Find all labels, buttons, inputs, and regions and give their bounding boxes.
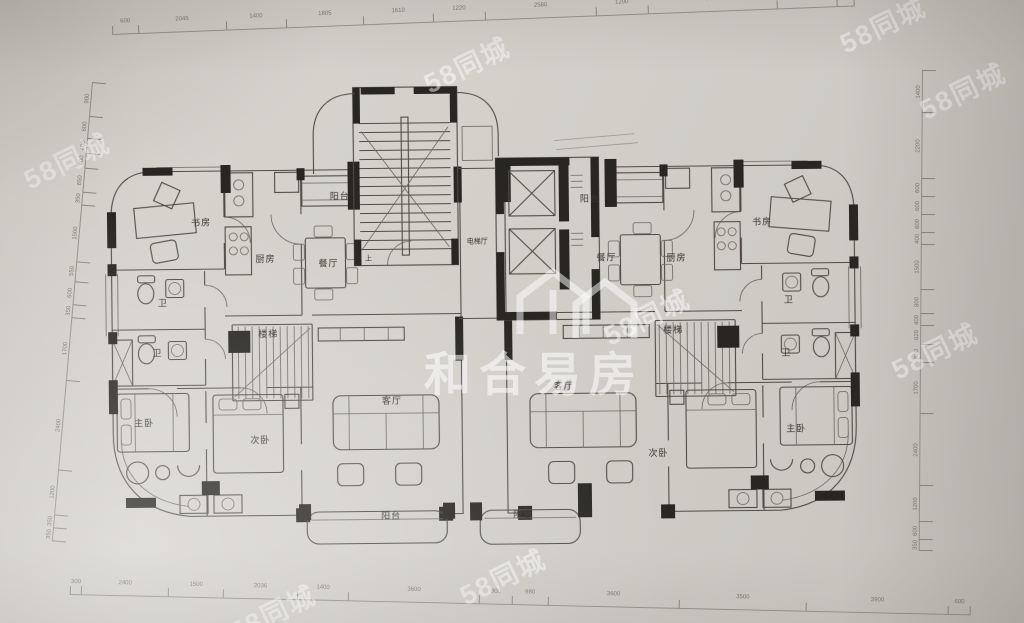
room-label-elevator-hall: 电梯厅 bbox=[467, 236, 488, 246]
room-label-balcony-top-left: 阳台 bbox=[330, 189, 350, 202]
room-label-study-right: 书房 bbox=[752, 215, 772, 228]
room-label-study-left: 书房 bbox=[191, 216, 211, 229]
room-label-bath-right-1: 卫 bbox=[784, 293, 794, 306]
floor-plan: 书房 厨房 餐厅 卫 卫 楼梯 客厅 主卧 次卧 阳台 阳台 电梯厅 上 书房 … bbox=[0, 0, 1024, 623]
room-label-second-left: 次卧 bbox=[250, 433, 270, 446]
room-label-master-left: 主卧 bbox=[134, 416, 154, 429]
room-label-stairs-right: 楼梯 bbox=[663, 323, 683, 336]
room-label-dining-right: 餐厅 bbox=[596, 250, 616, 263]
room-label-balcony-top-right: 阳台 bbox=[580, 192, 600, 205]
room-label-bath-left-1: 卫 bbox=[158, 296, 168, 309]
room-label-kitchen-left: 厨房 bbox=[255, 252, 275, 265]
floor-plan-drawing bbox=[0, 0, 1024, 623]
stairs-up-label: 上 bbox=[365, 253, 372, 263]
room-label-kitchen-right: 厨房 bbox=[666, 251, 686, 264]
room-label-bath-right-2: 卫 bbox=[781, 346, 791, 359]
room-label-dining-left: 餐厅 bbox=[318, 256, 338, 269]
floor-plan-photo: 书房 厨房 餐厅 卫 卫 楼梯 客厅 主卧 次卧 阳台 阳台 电梯厅 上 书房 … bbox=[0, 0, 1024, 623]
room-label-balcony-bottom-right: 阳台 bbox=[513, 507, 533, 520]
room-label-balcony-bottom-left: 阳台 bbox=[381, 509, 401, 522]
room-label-living-right: 客厅 bbox=[554, 379, 574, 392]
room-label-master-right: 主卧 bbox=[786, 421, 806, 434]
room-label-stairs-left: 楼梯 bbox=[258, 327, 278, 340]
room-label-living-left: 客厅 bbox=[382, 394, 402, 407]
room-label-second-right: 次卧 bbox=[648, 446, 668, 459]
room-label-bath-left-2: 卫 bbox=[152, 346, 162, 359]
